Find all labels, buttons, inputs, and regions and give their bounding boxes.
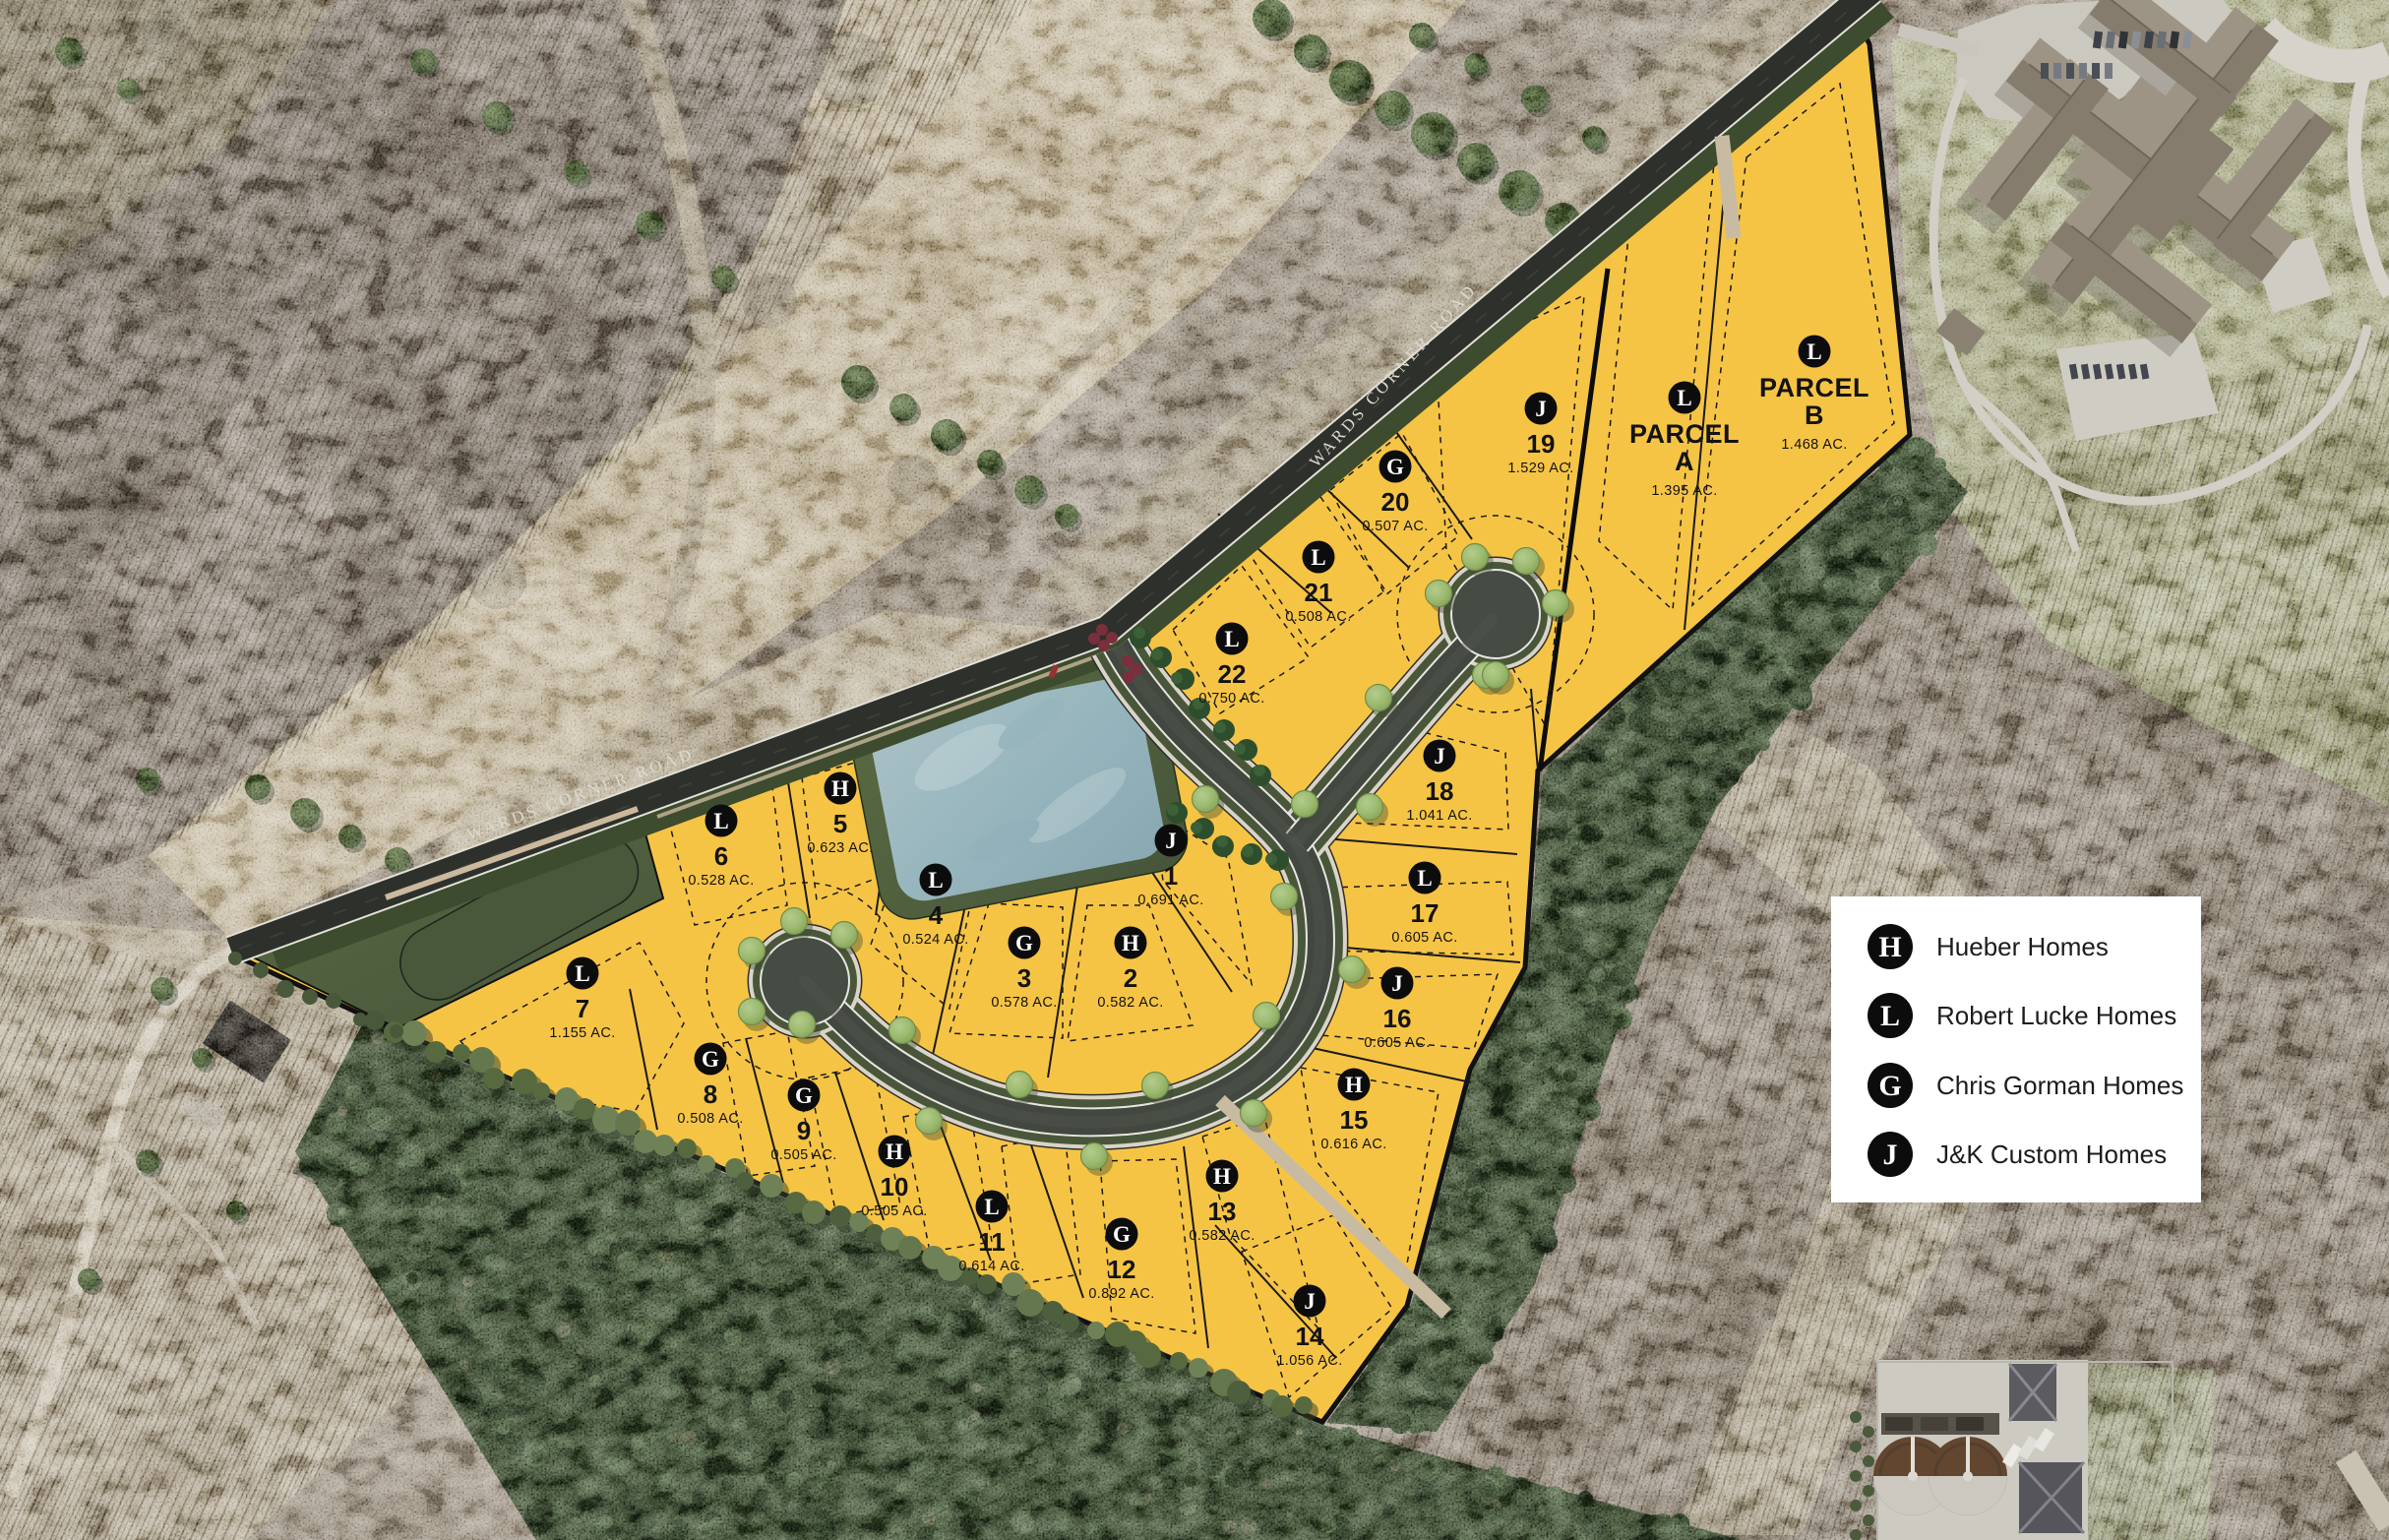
svg-text:L: L	[1224, 627, 1239, 651]
svg-text:L: L	[1807, 339, 1821, 364]
svg-text:16: 16	[1383, 1004, 1412, 1033]
svg-text:1.395 AC.: 1.395 AC.	[1651, 483, 1717, 499]
svg-text:0.578 AC.: 0.578 AC.	[991, 995, 1057, 1011]
svg-text:J: J	[1165, 829, 1177, 853]
svg-text:0.691 AC.: 0.691 AC.	[1137, 893, 1203, 908]
svg-text:0.616 AC.: 0.616 AC.	[1320, 1137, 1386, 1152]
svg-text:22: 22	[1218, 659, 1247, 689]
svg-text:11: 11	[978, 1227, 1006, 1257]
svg-text:0.508 AC.: 0.508 AC.	[1285, 609, 1351, 625]
svg-text:7: 7	[576, 994, 589, 1023]
svg-text:J&K Custom Homes: J&K Custom Homes	[1936, 1140, 2167, 1169]
svg-text:0.892 AC.: 0.892 AC.	[1088, 1286, 1154, 1302]
svg-text:G: G	[1386, 455, 1404, 479]
svg-text:0.524 AC.: 0.524 AC.	[902, 932, 968, 948]
svg-text:4: 4	[929, 900, 944, 930]
svg-text:J: J	[1391, 971, 1403, 996]
svg-text:G: G	[1878, 1070, 1901, 1102]
svg-text:2: 2	[1124, 963, 1137, 993]
svg-text:1.041 AC.: 1.041 AC.	[1406, 808, 1472, 824]
svg-text:G: G	[795, 1083, 813, 1108]
svg-text:1: 1	[1164, 861, 1178, 891]
svg-text:20: 20	[1381, 487, 1410, 517]
svg-text:0.508 AC.: 0.508 AC.	[677, 1111, 743, 1127]
svg-text:H: H	[1213, 1164, 1231, 1189]
svg-text:H: H	[1345, 1073, 1363, 1097]
svg-text:0.582 AC.: 0.582 AC.	[1097, 995, 1163, 1011]
svg-text:1.056 AC.: 1.056 AC.	[1276, 1353, 1342, 1369]
svg-text:18: 18	[1426, 776, 1454, 806]
svg-text:G: G	[702, 1047, 719, 1072]
svg-text:L: L	[1417, 866, 1432, 891]
svg-text:H: H	[1878, 931, 1901, 963]
svg-text:0.750 AC.: 0.750 AC.	[1198, 691, 1264, 707]
svg-text:12: 12	[1108, 1255, 1136, 1284]
svg-text:0.605 AC.: 0.605 AC.	[1391, 930, 1457, 946]
svg-text:6: 6	[714, 841, 728, 871]
svg-text:J: J	[1535, 397, 1547, 421]
svg-text:L: L	[713, 809, 728, 833]
svg-text:B: B	[1805, 400, 1824, 430]
svg-text:L: L	[928, 868, 943, 893]
svg-text:13: 13	[1208, 1197, 1237, 1226]
svg-text:17: 17	[1411, 898, 1440, 928]
svg-text:Hueber Homes: Hueber Homes	[1936, 932, 2109, 961]
svg-text:L: L	[1311, 545, 1325, 570]
svg-text:0.505 AC.: 0.505 AC.	[770, 1147, 836, 1163]
svg-text:1.155 AC.: 1.155 AC.	[549, 1025, 615, 1041]
svg-text:A: A	[1675, 447, 1694, 476]
svg-text:G: G	[1015, 931, 1033, 955]
svg-text:PARCEL: PARCEL	[1759, 373, 1869, 402]
svg-text:1.468 AC.: 1.468 AC.	[1781, 437, 1847, 453]
svg-text:0.507 AC.: 0.507 AC.	[1362, 519, 1428, 534]
svg-text:0.623 AC.: 0.623 AC.	[807, 840, 873, 856]
svg-text:H: H	[1122, 931, 1139, 955]
svg-text:J: J	[1883, 1139, 1898, 1171]
svg-text:8: 8	[704, 1079, 717, 1109]
svg-text:L: L	[1880, 1000, 1900, 1032]
svg-text:21: 21	[1305, 578, 1333, 607]
svg-text:L: L	[575, 961, 589, 986]
svg-text:0.605 AC.: 0.605 AC.	[1364, 1035, 1430, 1051]
svg-text:10: 10	[881, 1172, 909, 1201]
svg-text:L: L	[984, 1195, 999, 1219]
svg-text:G: G	[1113, 1222, 1131, 1247]
svg-text:0.614 AC.: 0.614 AC.	[958, 1259, 1024, 1274]
svg-text:H: H	[886, 1140, 903, 1164]
svg-text:15: 15	[1340, 1105, 1369, 1135]
svg-text:1.529 AC.: 1.529 AC.	[1507, 461, 1573, 476]
svg-text:Chris Gorman Homes: Chris Gorman Homes	[1936, 1071, 2183, 1100]
svg-text:9: 9	[797, 1116, 811, 1145]
svg-text:14: 14	[1296, 1322, 1324, 1351]
svg-text:5: 5	[833, 809, 847, 838]
svg-text:0.505 AC.: 0.505 AC.	[861, 1203, 927, 1219]
svg-text:H: H	[831, 776, 849, 801]
svg-text:Robert Lucke Homes: Robert Lucke Homes	[1936, 1001, 2176, 1030]
svg-text:PARCEL: PARCEL	[1629, 419, 1740, 449]
svg-text:19: 19	[1527, 429, 1556, 459]
svg-text:J: J	[1434, 744, 1445, 769]
svg-text:0.528 AC.: 0.528 AC.	[688, 873, 754, 889]
svg-text:0.582 AC.: 0.582 AC.	[1189, 1228, 1255, 1244]
svg-text:J: J	[1304, 1289, 1316, 1314]
svg-text:L: L	[1677, 386, 1691, 410]
svg-text:3: 3	[1017, 963, 1031, 993]
